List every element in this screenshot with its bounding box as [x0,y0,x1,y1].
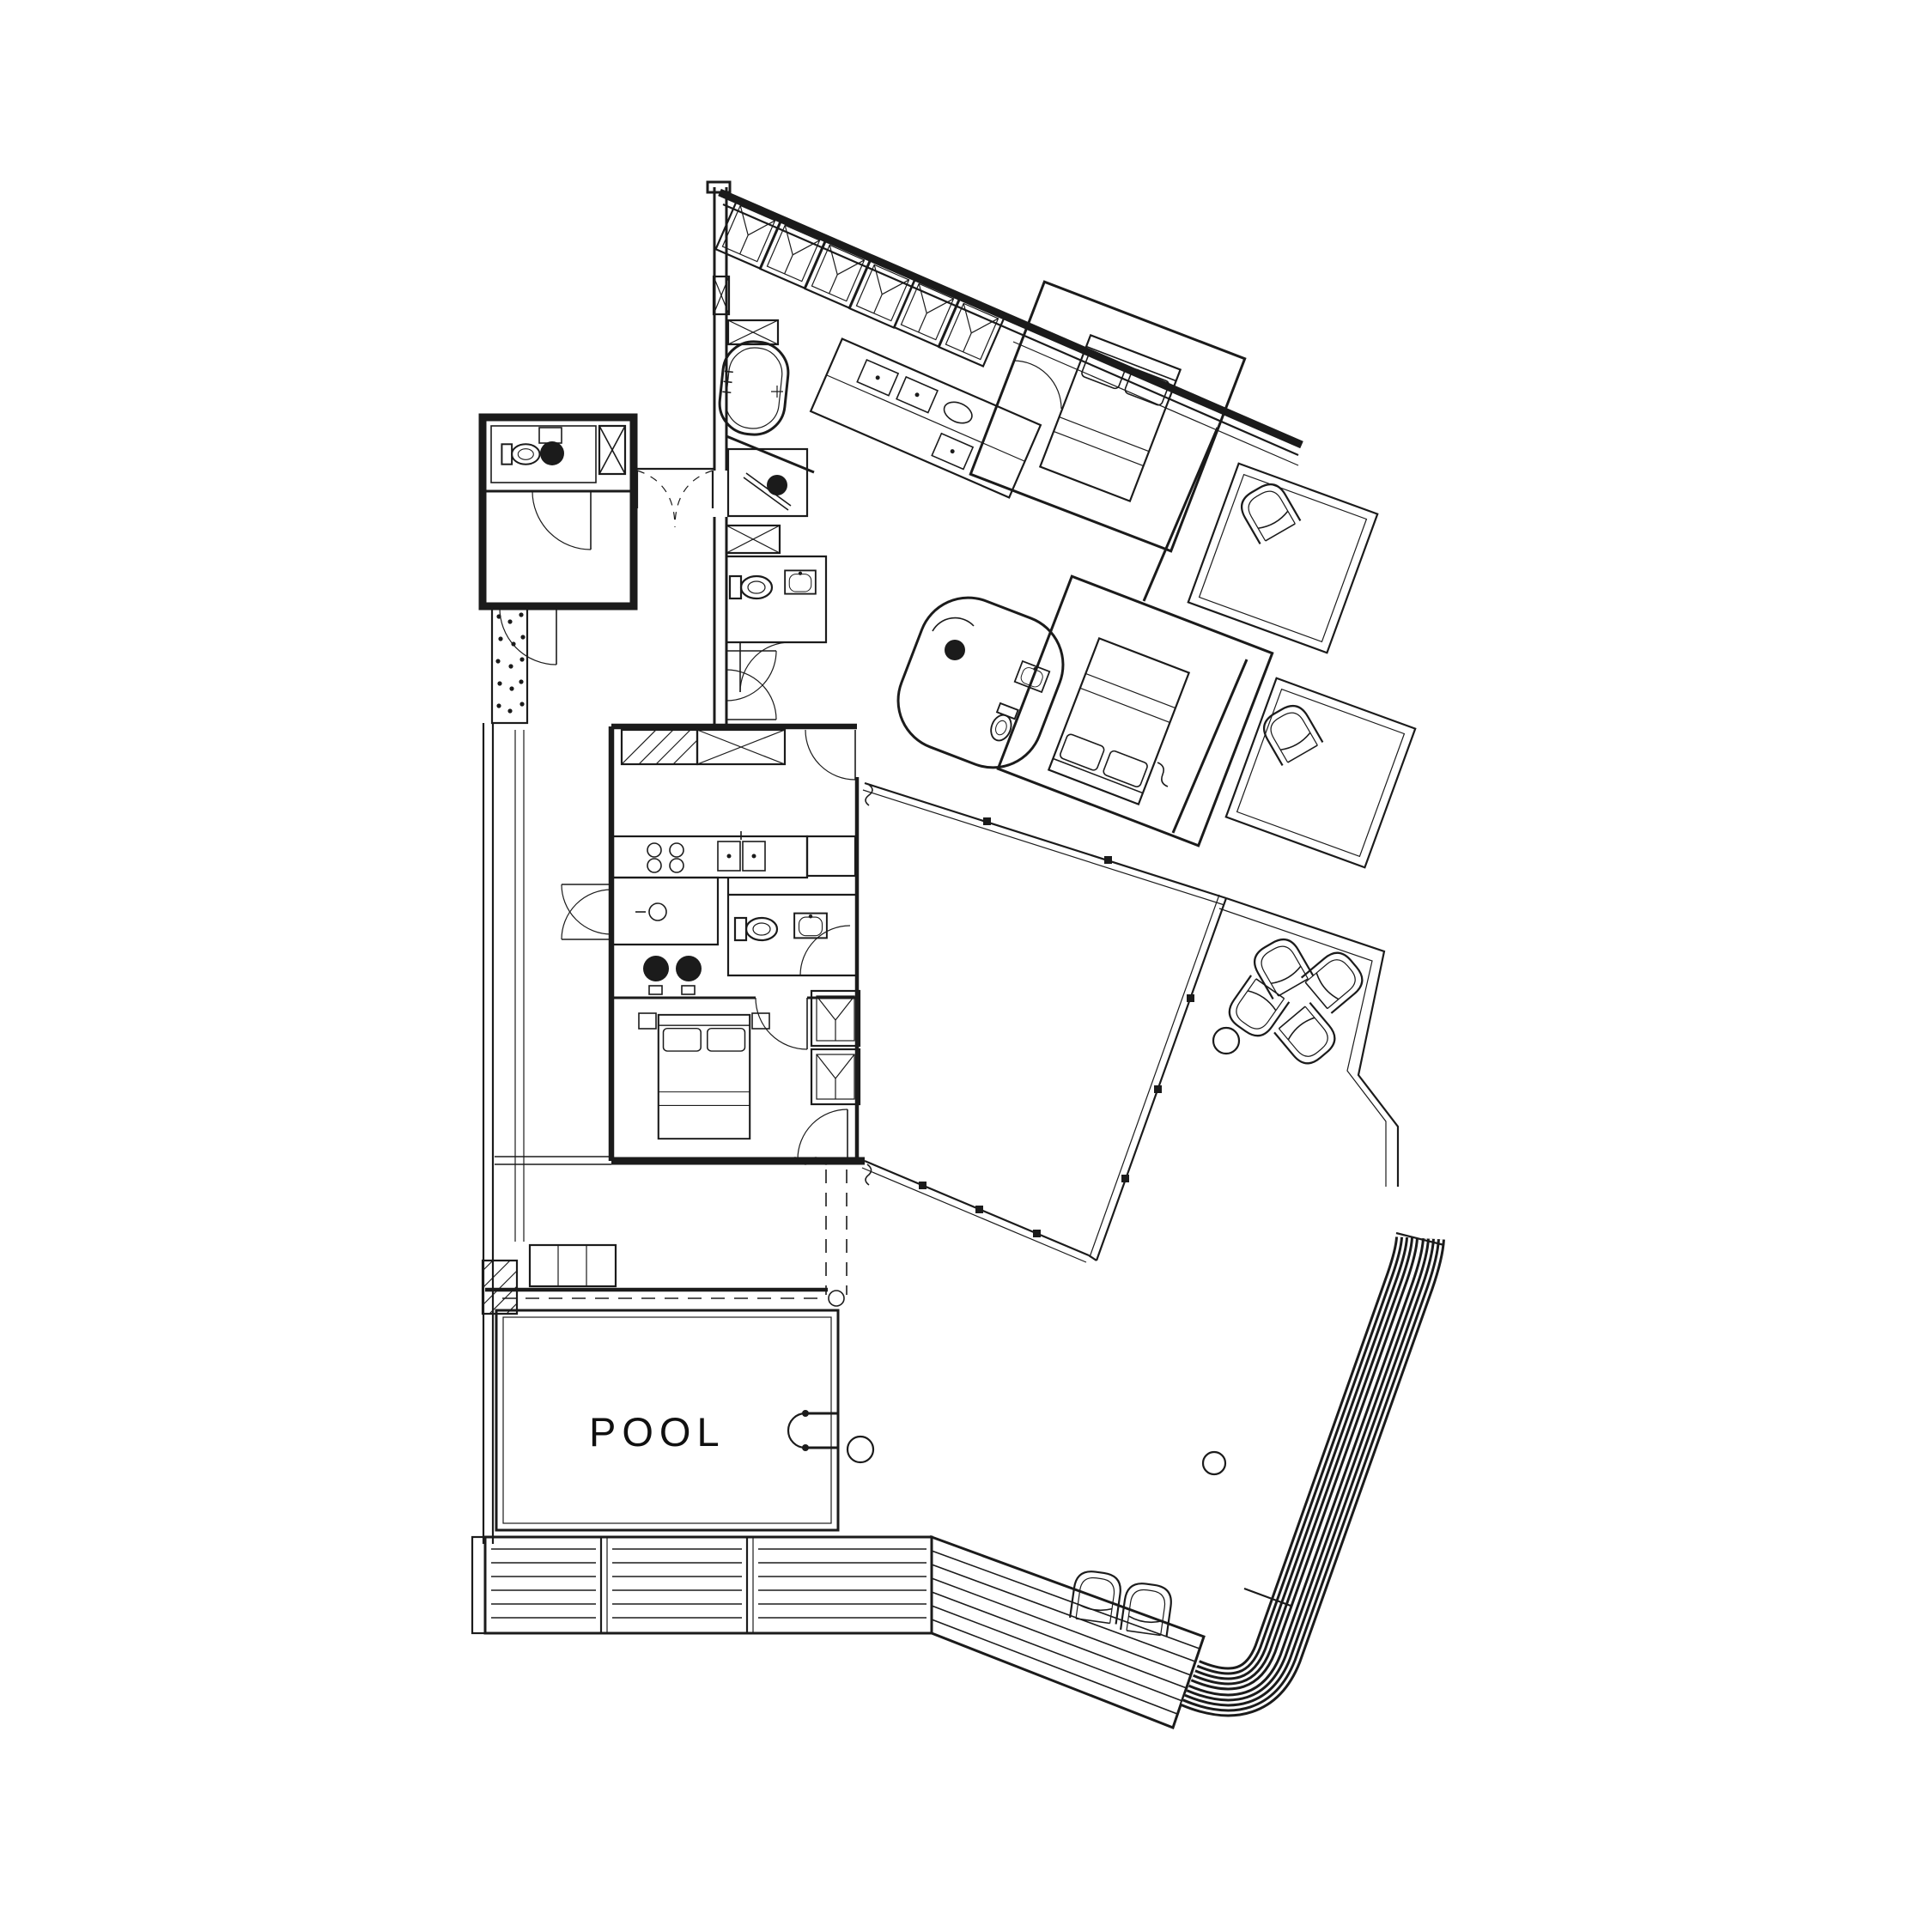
shower-drain-icon [767,475,787,495]
pool-label: POOL [589,1409,726,1455]
shower-drain-icon [540,441,564,465]
floor-plan-canvas: POOL [0,0,1932,1932]
page-background [0,0,1932,1932]
shower-drain-icon [945,640,965,660]
floor-plan-page: POOL [0,0,1932,1932]
